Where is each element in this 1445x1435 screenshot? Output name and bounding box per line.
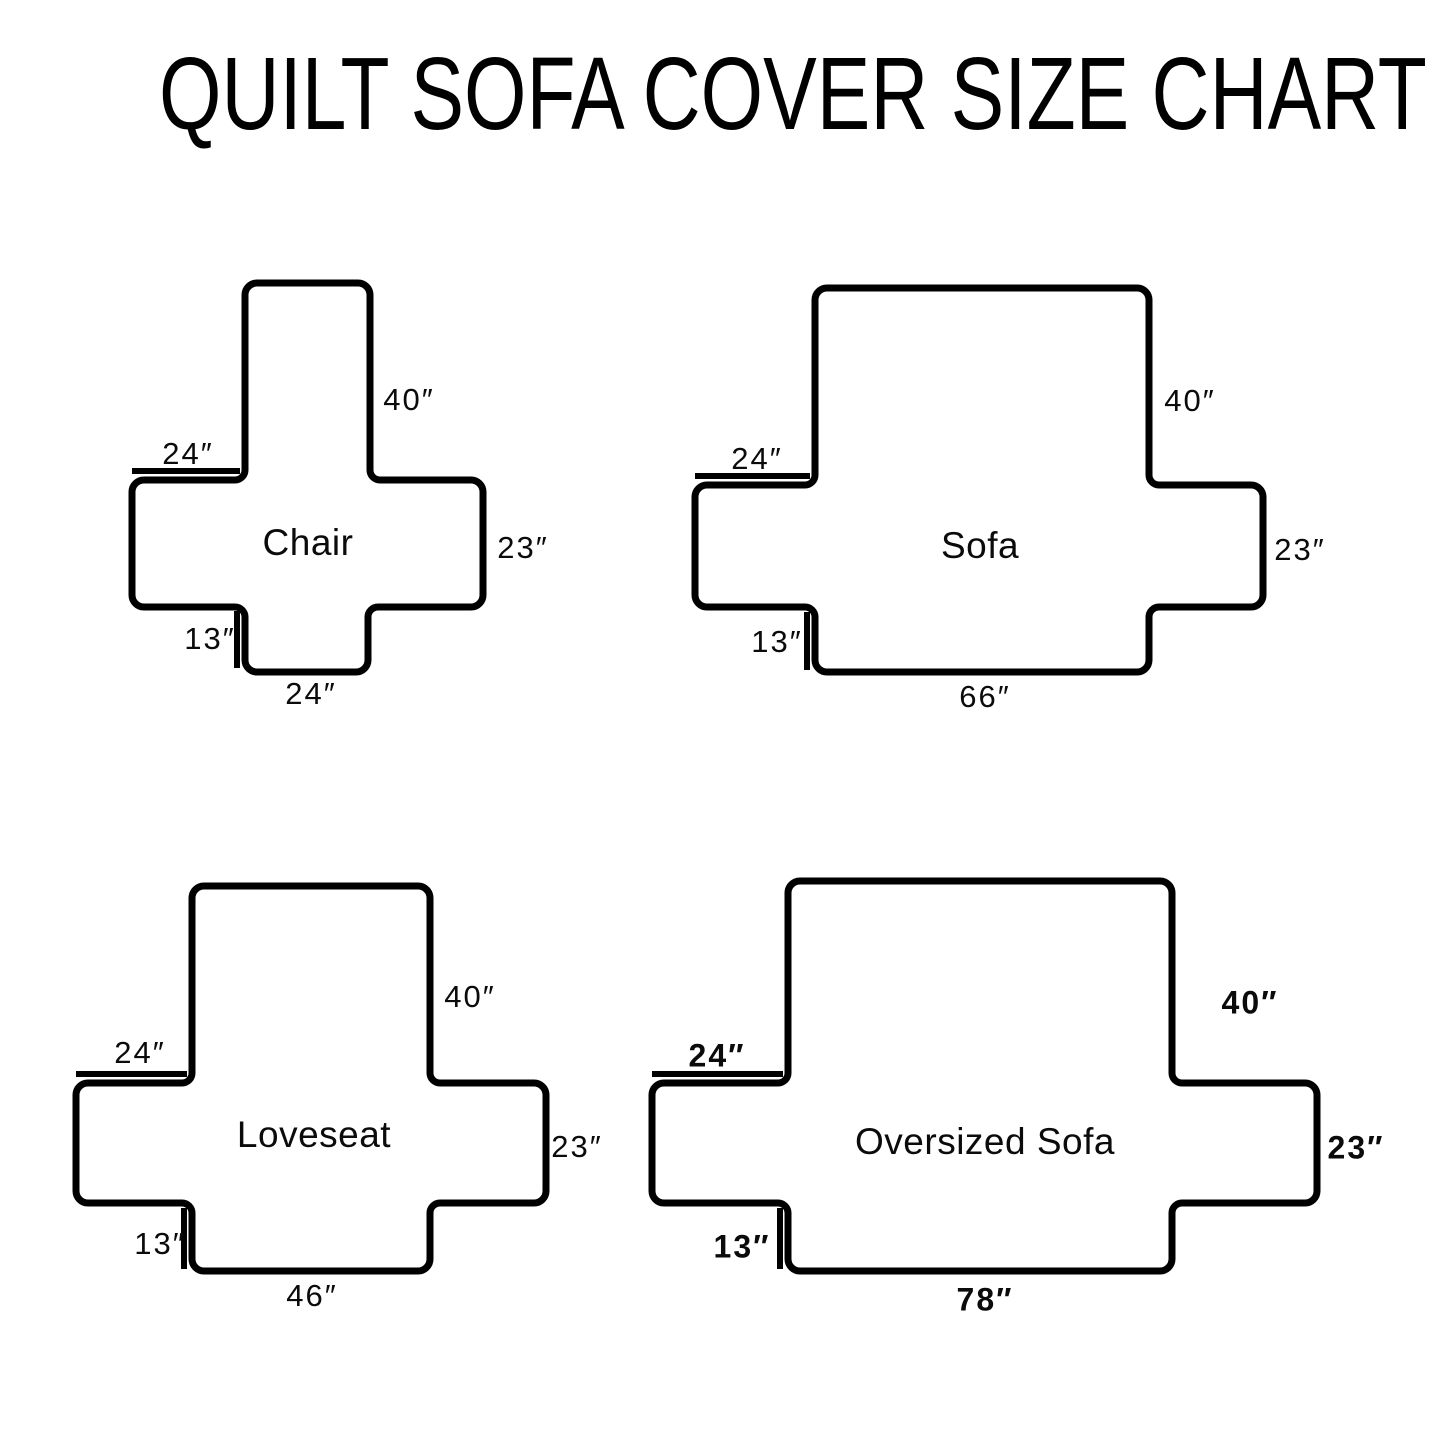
sofa-front-drop-label: 13″ xyxy=(751,624,802,660)
diagram-sofa: 40″ 24″ Sofa 23″ 13″ 66″ xyxy=(680,275,1380,720)
sofa-name-label: Sofa xyxy=(941,525,1019,567)
sofa-back-width-label: 24″ xyxy=(731,441,782,477)
diagram-chair: 40″ 24″ Chair 23″ 13″ 24″ xyxy=(125,275,565,720)
loveseat-front-width-label: 46″ xyxy=(286,1278,337,1314)
oversized-sofa-back-width-label: 24″ xyxy=(689,1038,746,1075)
loveseat-back-height-label: 40″ xyxy=(444,979,495,1015)
sofa-side-height-label: 23″ xyxy=(1274,532,1325,568)
chair-cover-outline xyxy=(132,283,483,672)
loveseat-back-width-label: 24″ xyxy=(114,1035,165,1071)
diagram-oversized-sofa: 40″ 24″ Oversized Sofa 23″ 13″ 78″ xyxy=(640,870,1420,1320)
oversized-sofa-name-label: Oversized Sofa xyxy=(855,1121,1115,1163)
oversized-sofa-front-width-label: 78″ xyxy=(957,1282,1014,1319)
chair-side-height-label: 23″ xyxy=(497,530,548,566)
chair-front-width-label: 24″ xyxy=(285,676,336,712)
oversized-sofa-back-height-label: 40″ xyxy=(1222,985,1279,1022)
sofa-back-height-label: 40″ xyxy=(1164,383,1215,419)
oversized-sofa-side-height-label: 23″ xyxy=(1328,1130,1385,1167)
chair-name-label: Chair xyxy=(263,522,354,564)
sofa-front-width-label: 66″ xyxy=(959,679,1010,715)
page-title: QUILT SOFA COVER SIZE CHART xyxy=(159,42,1286,145)
chair-front-drop-label: 13″ xyxy=(184,621,235,657)
diagram-loveseat: 40″ 24″ Loveseat 23″ 13″ 46″ xyxy=(60,870,660,1320)
loveseat-side-height-label: 23″ xyxy=(551,1129,602,1165)
loveseat-cover-outline xyxy=(76,886,546,1271)
chair-back-width-label: 24″ xyxy=(162,436,213,472)
loveseat-name-label: Loveseat xyxy=(237,1114,391,1156)
sofa-cover-outline xyxy=(695,288,1263,672)
chair-back-height-label: 40″ xyxy=(383,382,434,418)
oversized-sofa-front-drop-label: 13″ xyxy=(714,1229,771,1266)
size-chart: QUILT SOFA COVER SIZE CHART 40″ 24″ Chai… xyxy=(0,0,1445,1435)
loveseat-front-drop-label: 13″ xyxy=(134,1226,185,1262)
